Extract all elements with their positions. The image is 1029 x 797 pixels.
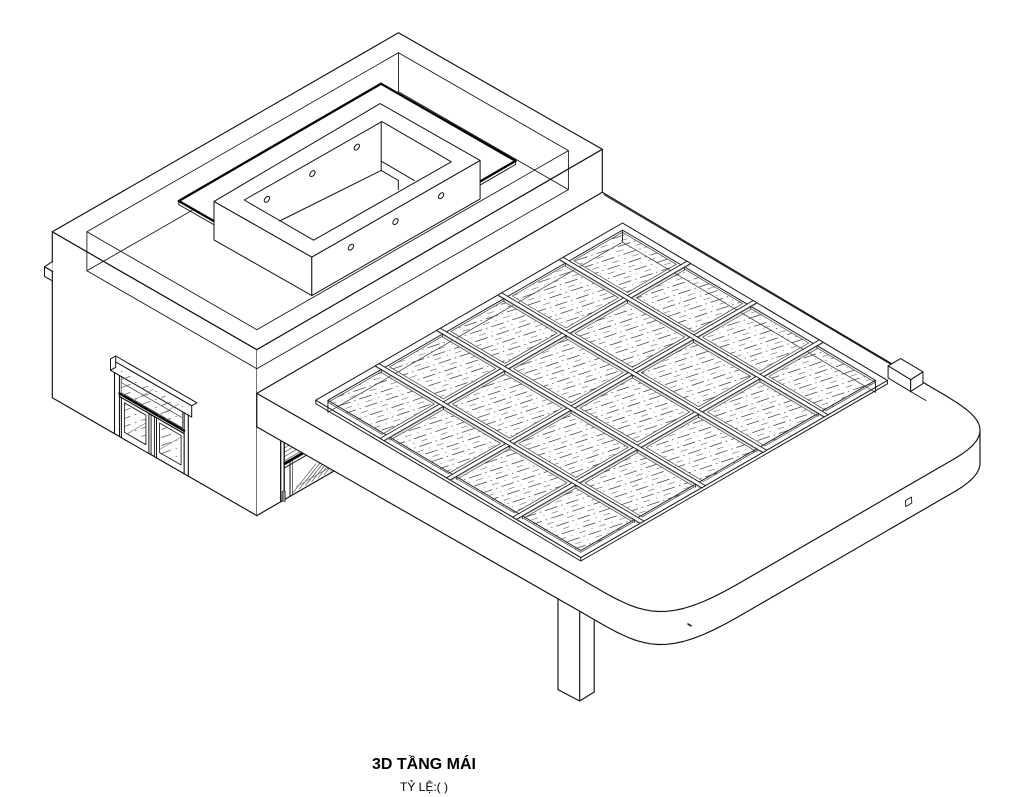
svg-text:3D TẦNG MÁI: 3D TẦNG MÁI bbox=[372, 754, 476, 773]
svg-text:TỶ LỆ:( ): TỶ LỆ:( ) bbox=[400, 779, 448, 794]
